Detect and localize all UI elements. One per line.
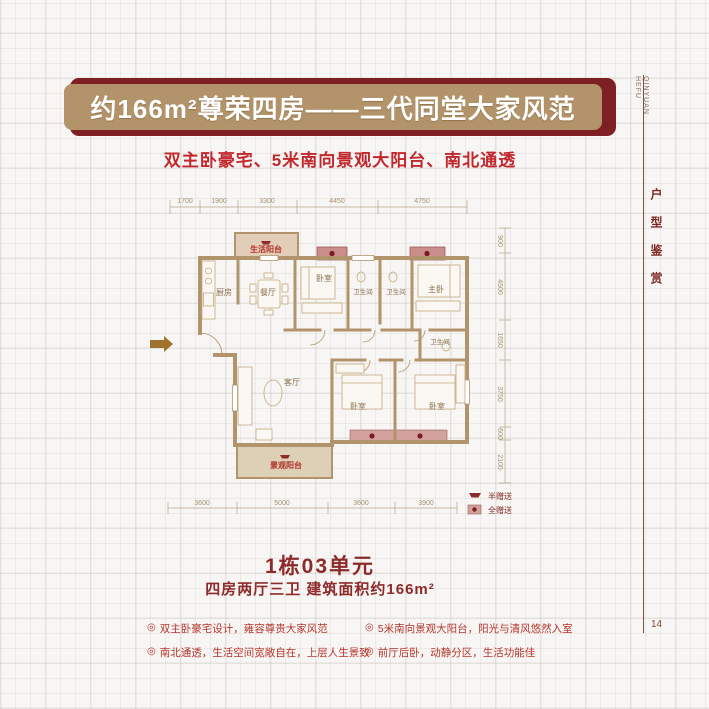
feature-item: ◎ 前厅后卧，动静分区，生活功能佳 bbox=[365, 645, 587, 669]
feature-text: 5米南向景观大阳台，阳光与清风悠然入室 bbox=[378, 621, 573, 636]
dimension-labels-bottom: 3600 5000 3600 3900 bbox=[194, 500, 434, 507]
legend-half-label: 半赠送 bbox=[488, 491, 512, 501]
gift-dot-icon bbox=[369, 433, 374, 438]
feature-text: 南北通透，生活空间宽敞自在，上层人生景致 bbox=[160, 645, 370, 660]
dimension-labels-top: 1700 1900 3300 4450 4750 bbox=[177, 198, 430, 205]
room-label-kitchen: 厨房 bbox=[216, 287, 232, 297]
room-label-master: 主卧 bbox=[428, 284, 444, 294]
page-number: 14 bbox=[651, 619, 662, 630]
bullet-icon: ◎ bbox=[147, 645, 156, 658]
room-label-view-balcony: 景观阳台 bbox=[270, 460, 302, 470]
dim-label: 4750 bbox=[414, 198, 430, 205]
gift-dot-icon bbox=[329, 251, 334, 256]
subtitle-text: 双主卧豪宅、5米南向景观大阳台、南北通透 bbox=[0, 146, 680, 171]
legend-full-dot-icon bbox=[472, 507, 476, 511]
unit-spec: 四房两厅三卫 建筑面积约166m² bbox=[80, 578, 560, 599]
dim-label: 1900 bbox=[211, 198, 227, 205]
feature-text: 双主卧豪宅设计，雍容尊贵大家风范 bbox=[160, 621, 328, 636]
legend-half-swatch bbox=[469, 493, 481, 498]
feature-item: ◎ 双主卧豪宅设计，雍容尊贵大家风范 bbox=[147, 621, 359, 645]
room-label-bath1: 卫生间 bbox=[353, 287, 373, 296]
floorplan: 1700 1900 3300 4450 4750 3600 5000 3600 … bbox=[120, 185, 520, 540]
legend-full-label: 全赠送 bbox=[488, 505, 512, 515]
dimension-chain-right bbox=[499, 228, 511, 483]
dim-label: 1650 bbox=[496, 332, 503, 348]
dim-label: 4450 bbox=[329, 198, 345, 205]
room-label-bedroom-right: 卧室 bbox=[429, 401, 445, 411]
dim-label: 900 bbox=[496, 235, 503, 247]
sidebar-divider bbox=[643, 75, 644, 633]
room-label-life-balcony: 生活阳台 bbox=[250, 244, 282, 254]
room-label-dining: 餐厅 bbox=[260, 288, 276, 297]
dim-label: 4500 bbox=[496, 279, 503, 295]
dim-label: 3300 bbox=[259, 198, 275, 205]
room-label-bath2: 卫生间 bbox=[386, 287, 406, 296]
bullet-icon: ◎ bbox=[365, 645, 374, 658]
dim-label: 3600 bbox=[194, 500, 210, 507]
room-label-bedroom-left: 卧室 bbox=[350, 401, 366, 411]
dim-label: 3750 bbox=[496, 386, 503, 402]
banner-title: 约166m²尊荣四房——三代同堂大家风范 bbox=[90, 89, 575, 126]
brand-text: QINYUAN HEFU bbox=[633, 76, 649, 115]
banner-front-plate: 约166m²尊荣四房——三代同堂大家风范 bbox=[64, 84, 602, 130]
feature-item: ◎ 南北通透，生活空间宽敞自在，上层人生景致 bbox=[147, 645, 359, 669]
gift-dot-icon bbox=[424, 251, 429, 256]
gift-dot-icon bbox=[417, 433, 422, 438]
dim-label: 1700 bbox=[177, 198, 193, 205]
dimension-chain-bottom bbox=[168, 502, 457, 514]
brand-line1: QINYUAN bbox=[641, 76, 649, 115]
dim-label: 3900 bbox=[418, 500, 434, 507]
dim-label: 5000 bbox=[274, 500, 290, 507]
section-title-vertical: 户型鉴赏 bbox=[648, 188, 665, 300]
dim-label: 2100 bbox=[496, 454, 503, 470]
feature-text: 前厅后卧，动静分区，生活功能佳 bbox=[378, 645, 536, 660]
feature-list: ◎ 双主卧豪宅设计，雍容尊贵大家风范 ◎ 南北通透，生活空间宽敞自在，上层人生景… bbox=[147, 621, 587, 669]
room-label-living: 客厅 bbox=[284, 377, 300, 387]
entrance-arrow-icon bbox=[150, 336, 173, 352]
bullet-icon: ◎ bbox=[147, 621, 156, 634]
dim-label: 3600 bbox=[353, 500, 369, 507]
plan-legend: 半赠送 全赠送 bbox=[468, 491, 512, 515]
dim-label: 600 bbox=[496, 428, 503, 440]
top-banner: 约166m²尊荣四房——三代同堂大家风范 bbox=[64, 78, 616, 136]
unit-title: 1栋03单元 bbox=[120, 550, 520, 580]
dimension-labels-right: 900 4500 1650 3750 600 2100 bbox=[496, 235, 503, 470]
room-label-bath3: 卫生间 bbox=[430, 337, 450, 346]
brand-line2: HEFU bbox=[633, 76, 641, 115]
bullet-icon: ◎ bbox=[365, 621, 374, 634]
floorplan-svg: 1700 1900 3300 4450 4750 3600 5000 3600 … bbox=[120, 185, 520, 540]
room-label-bedroom-top: 卧室 bbox=[316, 273, 332, 283]
feature-item: ◎ 5米南向景观大阳台，阳光与清风悠然入室 bbox=[365, 621, 587, 645]
